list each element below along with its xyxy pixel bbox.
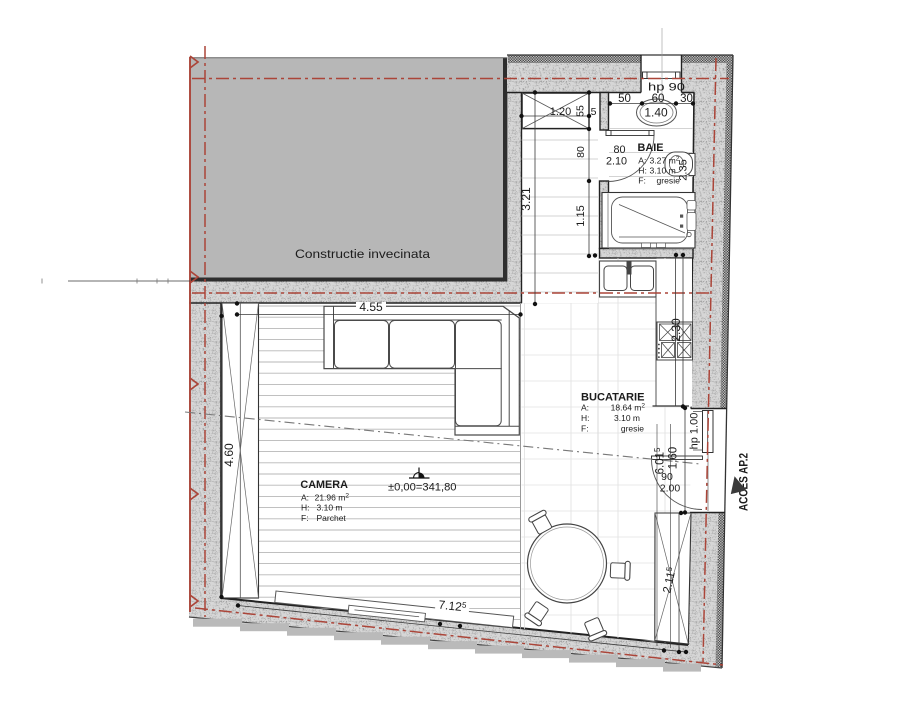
svg-text:A:: A: <box>581 403 589 413</box>
svg-text:3.27 m2: 3.27 m2 <box>650 156 680 166</box>
svg-text:4.55: 4.55 <box>359 300 383 314</box>
svg-text:Parchet: Parchet <box>317 513 347 523</box>
svg-text:2.10: 2.10 <box>606 156 627 168</box>
svg-text:F:: F: <box>638 175 646 185</box>
svg-text:60: 60 <box>652 93 665 105</box>
svg-text:BAIE: BAIE <box>638 142 664 154</box>
svg-text:hp 1.00: hp 1.00 <box>689 413 701 450</box>
svg-text:30: 30 <box>680 93 693 105</box>
svg-text:90: 90 <box>661 471 673 483</box>
svg-text:hp 90: hp 90 <box>648 82 685 94</box>
svg-text:A:: A: <box>301 492 309 502</box>
svg-text:3.10 m: 3.10 m <box>614 413 640 423</box>
svg-text:2.00: 2.00 <box>660 483 681 495</box>
svg-text:A:: A: <box>638 156 646 166</box>
svg-text:H:: H: <box>638 165 647 175</box>
svg-text:ACCES AP.2: ACCES AP.2 <box>739 453 751 511</box>
svg-text:BUCATARIE: BUCATARIE <box>581 391 645 403</box>
svg-text:21.96 m2: 21.96 m2 <box>315 492 350 502</box>
svg-text:±0,00=341,80: ±0,00=341,80 <box>388 482 457 494</box>
svg-text:1.20: 1.20 <box>550 106 571 118</box>
svg-text:55: 55 <box>575 105 587 117</box>
svg-text:1.15: 1.15 <box>575 205 587 226</box>
svg-text:Constructie invecinata: Constructie invecinata <box>295 247 430 261</box>
svg-text:F:: F: <box>301 513 309 523</box>
svg-text:2.35: 2.35 <box>678 159 690 180</box>
svg-text:5: 5 <box>591 106 597 118</box>
svg-text:CAMERA: CAMERA <box>300 479 348 491</box>
svg-text:H:: H: <box>301 503 310 513</box>
svg-text:4.60: 4.60 <box>222 443 236 467</box>
svg-text:1.60: 1.60 <box>668 447 680 469</box>
svg-text:80: 80 <box>575 146 587 158</box>
svg-text:gresie: gresie <box>621 424 644 434</box>
svg-text:2.30: 2.30 <box>669 318 683 342</box>
svg-text:80: 80 <box>613 144 625 156</box>
svg-text:F:: F: <box>581 424 589 434</box>
svg-text:H:: H: <box>581 413 590 423</box>
svg-text:3.21: 3.21 <box>519 187 533 211</box>
svg-text:50: 50 <box>618 93 631 105</box>
svg-text:18.64 m2: 18.64 m2 <box>611 403 646 413</box>
svg-text:3.10 m: 3.10 m <box>317 503 343 513</box>
svg-text:1.40: 1.40 <box>644 106 668 120</box>
svg-text:3.10 m: 3.10 m <box>650 165 676 175</box>
